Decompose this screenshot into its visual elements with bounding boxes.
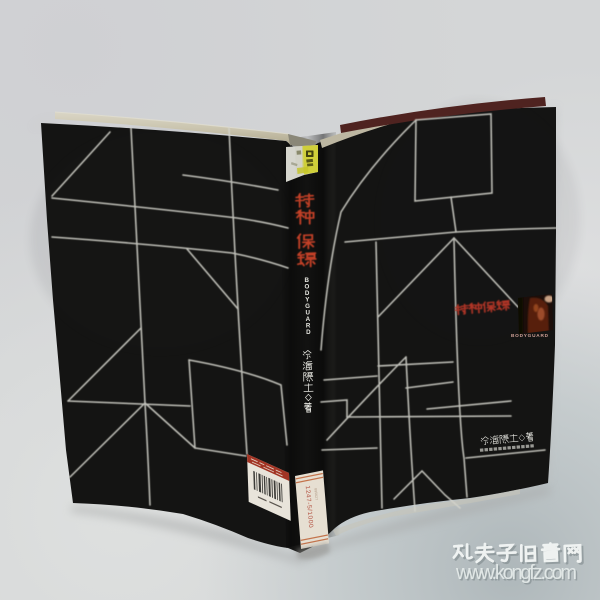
svg-text:D: D bbox=[306, 329, 311, 336]
svg-text:www.kongfz.com: www.kongfz.com bbox=[455, 562, 577, 584]
svg-text:BODYGUARD: BODYGUARD bbox=[511, 333, 549, 338]
